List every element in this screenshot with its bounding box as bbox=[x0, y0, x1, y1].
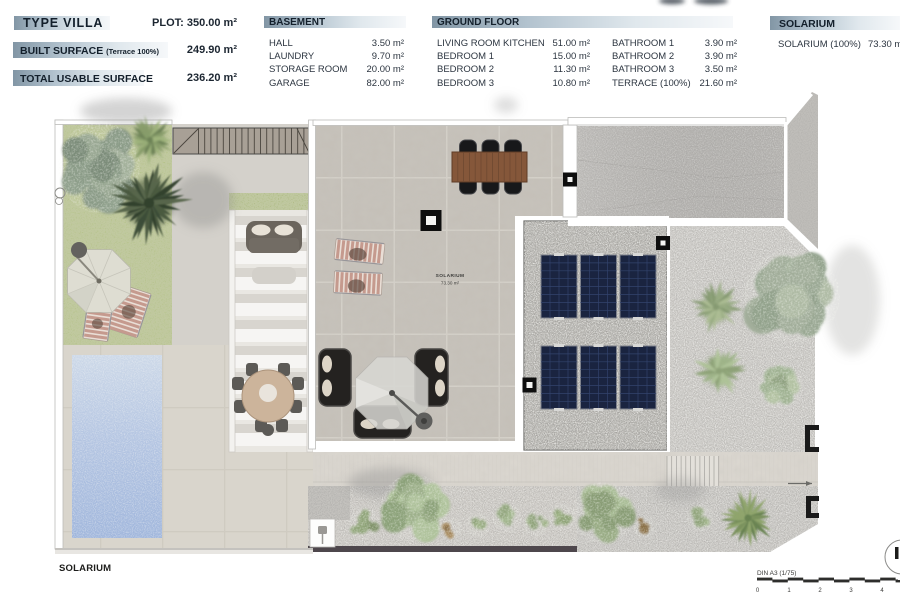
svg-text:DIN A3 (1/75): DIN A3 (1/75) bbox=[757, 570, 796, 577]
svg-text:SOLARIUM: SOLARIUM bbox=[436, 273, 465, 279]
svg-text:73.30 m²: 73.30 m² bbox=[441, 281, 460, 286]
